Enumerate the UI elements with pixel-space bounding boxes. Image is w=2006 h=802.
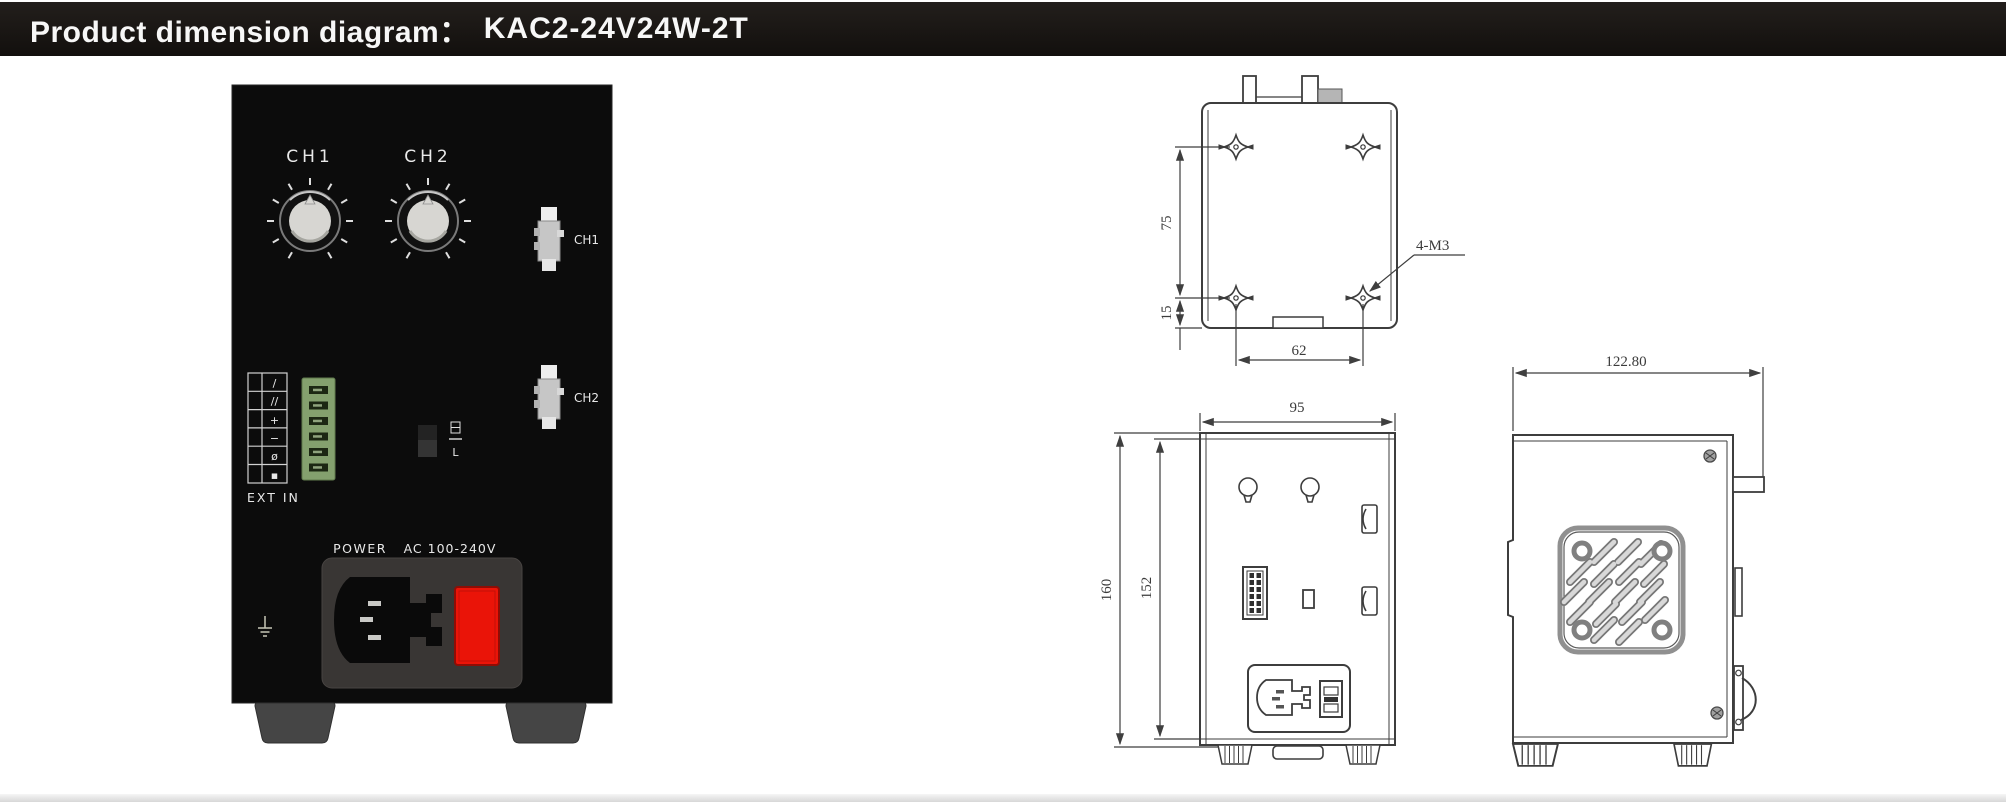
front-view-foot <box>1346 745 1380 764</box>
dip-switch[interactable] <box>418 425 437 457</box>
dim-160-label: 160 <box>1099 579 1115 602</box>
top-view-tab <box>1243 76 1256 103</box>
power-label: POWER <box>333 541 387 556</box>
knob-ch1-label: CH1 <box>286 147 333 167</box>
top-view-tab <box>1302 76 1318 103</box>
side-view-foot <box>1513 744 1558 766</box>
product-model: KAC2-24V24W-2T <box>484 12 749 46</box>
legend-symbol: ▪ <box>271 469 278 482</box>
side-view-tab <box>1733 477 1764 492</box>
device-foot-left <box>255 703 335 743</box>
connector-ch2-label: CH2 <box>574 391 599 405</box>
terminal-caption: EXT IN <box>247 490 300 505</box>
front-view-bottom-slot <box>1273 746 1323 759</box>
vent-corner-hole <box>1574 543 1590 559</box>
dim-152-label: 152 <box>1139 577 1155 600</box>
dim-15-label: 15 <box>1159 306 1175 321</box>
front-view: 95 160 152 <box>1099 400 1395 764</box>
knob-ch2-label: CH2 <box>404 147 451 167</box>
legend-symbol: + <box>270 414 279 427</box>
front-view-foot <box>1218 745 1252 764</box>
legend-symbol: // <box>271 395 279 408</box>
side-view-body <box>1508 435 1733 743</box>
dip-switch-mark-label: L <box>452 446 459 459</box>
vent-corner-hole <box>1574 622 1590 638</box>
legend-symbol: − <box>270 432 279 445</box>
dimension-drawings: 75 15 62 4-M3 95 <box>1080 60 1820 802</box>
top-view-latch <box>1318 89 1342 103</box>
iec-inlet-module <box>322 558 522 688</box>
screw-note-label: 4-M3 <box>1416 238 1449 254</box>
screw <box>1704 450 1716 462</box>
side-view: 122.80 <box>1508 354 1764 766</box>
dim-122-label: 122.80 <box>1605 354 1646 370</box>
screw <box>1711 707 1723 719</box>
dim-95-label: 95 <box>1290 400 1305 416</box>
side-view-bump <box>1735 568 1742 616</box>
bottom-edge-strip <box>0 794 2006 802</box>
legend-symbol: ø <box>271 450 278 463</box>
vent-corner-hole <box>1654 543 1670 559</box>
title-bar: Product dimension diagram： KAC2-24V24W-2… <box>0 2 2006 56</box>
legend-symbol: / <box>273 377 277 390</box>
side-view-foot <box>1674 744 1711 766</box>
voltage-label: AC 100-240V <box>404 541 497 556</box>
side-view-bracket <box>1734 666 1756 730</box>
dim-62-label: 62 <box>1292 343 1307 359</box>
dim-height-inner <box>1154 439 1200 739</box>
device-foot-right <box>506 703 586 743</box>
dim-hole-bottom-offset <box>1175 301 1202 350</box>
front-view-body <box>1200 433 1395 745</box>
connector-ch1-label: CH1 <box>574 233 599 247</box>
green-terminal-block[interactable] <box>302 378 335 480</box>
page-title: Product dimension diagram： <box>30 7 470 51</box>
top-view: 75 15 62 4-M3 <box>1159 76 1465 366</box>
power-rocker-switch[interactable] <box>455 587 499 665</box>
vent-corner-hole <box>1654 622 1670 638</box>
dim-75-label: 75 <box>1159 216 1175 231</box>
product-photo: CH1 CH2 CH1 CH2 / // + − ø ▪ EXT IN <box>200 60 640 802</box>
